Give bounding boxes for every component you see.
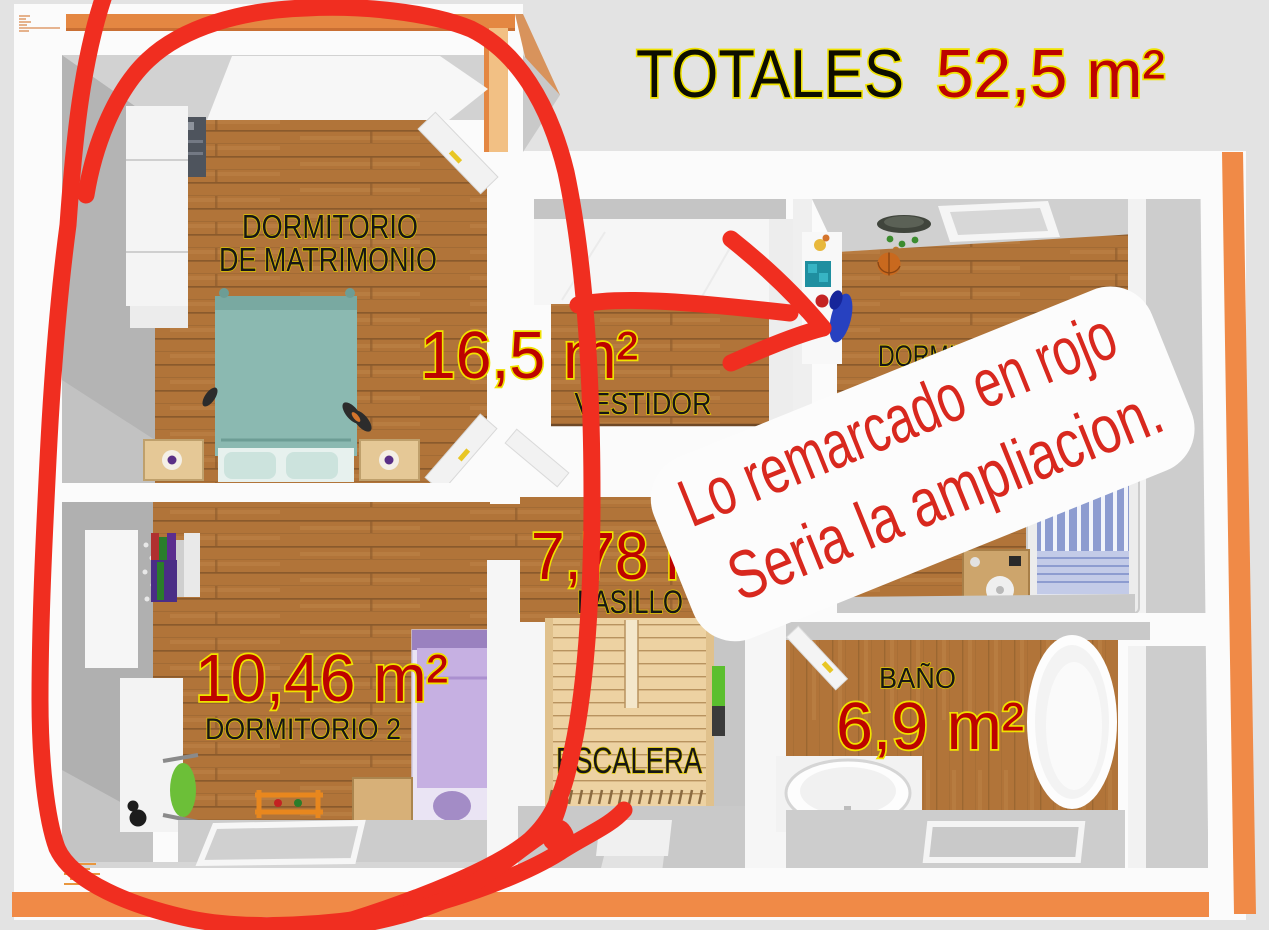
svg-text:16,5 m²: 16,5 m² bbox=[420, 318, 638, 393]
svg-text:10,46 m²: 10,46 m² bbox=[195, 641, 448, 716]
svg-text:DORMITORIO: DORMITORIO bbox=[242, 208, 418, 245]
svg-text:6,9 m²: 6,9 m² bbox=[836, 689, 1024, 764]
svg-text:TOTALES: TOTALES bbox=[636, 36, 904, 112]
svg-text:DORMITORIO 2: DORMITORIO 2 bbox=[205, 713, 401, 746]
svg-text:52,5 m²: 52,5 m² bbox=[936, 36, 1165, 112]
svg-text:DE MATRIMONIO: DE MATRIMONIO bbox=[219, 241, 437, 278]
